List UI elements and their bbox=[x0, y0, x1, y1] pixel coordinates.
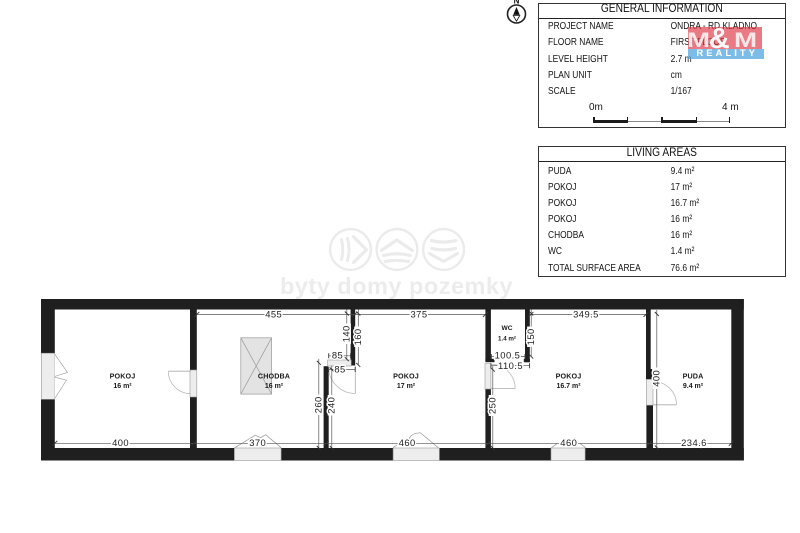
svg-text:17 m²: 17 m² bbox=[397, 383, 416, 390]
svg-text:160: 160 bbox=[352, 328, 363, 345]
svg-text:85: 85 bbox=[332, 349, 343, 360]
svg-text:CHODBA: CHODBA bbox=[258, 372, 290, 381]
svg-text:250: 250 bbox=[487, 397, 498, 414]
svg-text:16 m²: 16 m² bbox=[113, 383, 132, 390]
svg-text:1.4 m²: 1.4 m² bbox=[498, 336, 516, 343]
svg-text:460: 460 bbox=[399, 437, 416, 448]
svg-text:WC: WC bbox=[502, 325, 513, 332]
svg-text:349.5: 349.5 bbox=[573, 308, 599, 319]
svg-text:150: 150 bbox=[525, 328, 536, 345]
svg-text:455: 455 bbox=[265, 308, 282, 319]
svg-text:100.5: 100.5 bbox=[495, 349, 521, 360]
svg-text:N: N bbox=[514, 0, 520, 5]
svg-text:140: 140 bbox=[341, 325, 352, 342]
svg-text:375: 375 bbox=[411, 308, 428, 319]
svg-text:85: 85 bbox=[334, 363, 345, 374]
svg-text:460: 460 bbox=[560, 437, 577, 448]
svg-text:POKOJ: POKOJ bbox=[110, 372, 136, 381]
svg-text:PUDA: PUDA bbox=[683, 372, 704, 381]
svg-text:400: 400 bbox=[112, 437, 129, 448]
svg-text:16 m²: 16 m² bbox=[265, 383, 284, 390]
svg-text:POKOJ: POKOJ bbox=[556, 372, 582, 381]
svg-text:16.7 m²: 16.7 m² bbox=[556, 383, 581, 390]
svg-text:370: 370 bbox=[249, 437, 266, 448]
svg-text:400: 400 bbox=[651, 370, 662, 387]
svg-text:9.4 m²: 9.4 m² bbox=[683, 383, 704, 390]
svg-text:260: 260 bbox=[313, 396, 324, 413]
svg-text:234.6: 234.6 bbox=[681, 437, 707, 448]
svg-text:240: 240 bbox=[326, 397, 337, 414]
svg-text:POKOJ: POKOJ bbox=[393, 372, 419, 381]
svg-text:110.5: 110.5 bbox=[498, 360, 523, 371]
svg-text:byty domy pozemky: byty domy pozemky bbox=[280, 273, 513, 299]
